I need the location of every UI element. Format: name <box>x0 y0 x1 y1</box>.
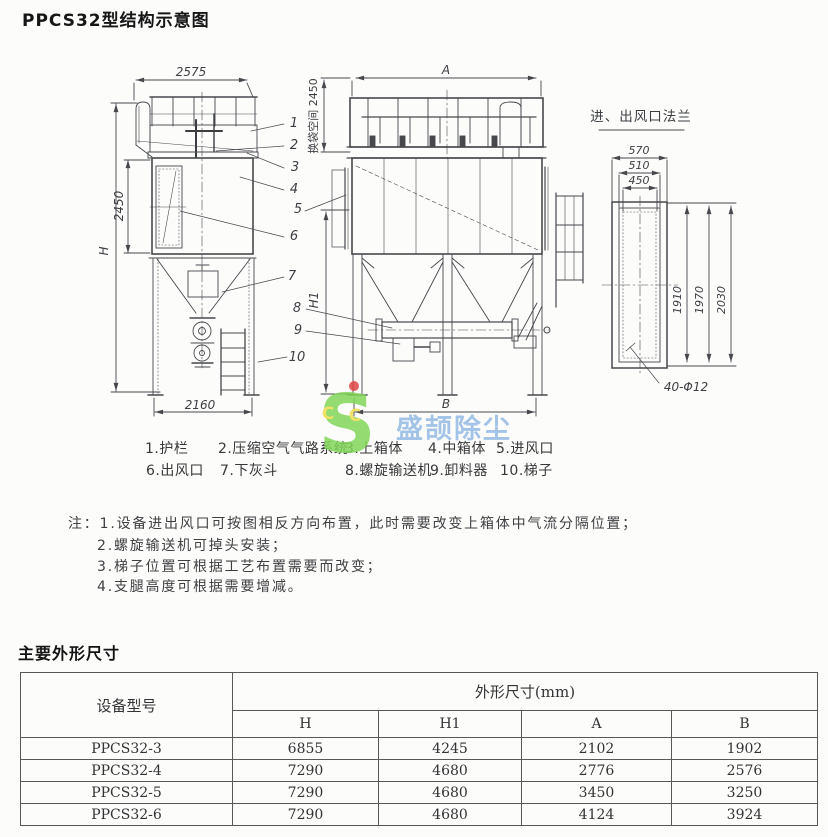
callout-1: 1 <box>290 116 298 131</box>
legend-item-2: 2.压缩空气气路系统 <box>218 438 348 458</box>
legend-item-4: 4.中箱体 <box>428 438 486 458</box>
callout-4: 4 <box>290 182 298 197</box>
note-line-2: 2.螺旋输送机可掉头安装； <box>97 535 288 555</box>
note-line-4: 4.支腿高度可根据需要增减。 <box>97 576 304 596</box>
cell-A: 3450 <box>522 782 672 804</box>
legend-item-3: 3.上箱体 <box>345 438 403 458</box>
dim-flange-510: 510 <box>629 159 650 172</box>
col-header-model: 设备型号 <box>21 673 233 738</box>
cell-H: 7290 <box>233 760 379 782</box>
legend-item-10: 10.梯子 <box>500 460 553 480</box>
section-title: 主要外形尺寸 <box>18 640 120 664</box>
page: PPCS32型结构示意图 1.护栏 2.压缩空气气路系统 3.上箱体 4.中箱体… <box>0 0 828 837</box>
col-header-group: 外形尺寸(mm) <box>233 673 818 711</box>
callout-7: 7 <box>288 269 297 284</box>
cell-B: 1902 <box>672 738 818 760</box>
dim-body-height: 2450 <box>112 190 126 221</box>
flange-detail-title: 进、出风口法兰 <box>590 109 692 125</box>
cell-H: 7290 <box>233 782 379 804</box>
page-title: PPCS32型结构示意图 <box>22 6 210 31</box>
cell-H: 7290 <box>233 804 379 826</box>
dim-flange-2030: 2030 <box>715 286 728 314</box>
col-header-H: H <box>233 711 379 738</box>
callout-5: 5 <box>294 202 302 217</box>
note-line-1: 注：1.设备进出风口可按图相反方向布置，此时需要改变上箱体中气流分隔位置； <box>68 513 638 533</box>
callout-6: 6 <box>290 229 298 244</box>
cell-H1: 4680 <box>379 782 522 804</box>
table-row: PPCS32-6 7290 4680 4124 3924 <box>21 804 818 826</box>
note-prefix: 注： <box>68 516 100 532</box>
watermark-red-dot <box>349 381 359 391</box>
dim-front-width: A <box>441 63 450 77</box>
dim-base-width: 2160 <box>185 398 216 412</box>
legend-item-1: 1.护栏 <box>145 438 188 458</box>
dim-flange-450: 450 <box>629 174 650 187</box>
cell-B: 2576 <box>672 760 818 782</box>
cell-B: 3924 <box>672 804 818 826</box>
callout-2: 2 <box>290 138 298 153</box>
callout-9: 9 <box>294 323 302 338</box>
callout-8: 8 <box>293 301 301 316</box>
legend-item-6: 6.出风口 <box>146 460 204 480</box>
dim-overall-height: H <box>97 246 111 255</box>
note-1: 1.设备进出风口可按图相反方向布置，此时需要改变上箱体中气流分隔位置； <box>100 516 638 532</box>
cell-H1: 4680 <box>379 760 522 782</box>
dim-hopper-height: H1 <box>307 292 321 309</box>
dimensions-table: 设备型号 外形尺寸(mm) H H1 A B PPCS32-3 6855 424… <box>20 672 818 826</box>
callout-3: 3 <box>291 160 299 175</box>
legend-item-8: 8.螺旋输送机 <box>345 460 432 480</box>
dim-top-width: 2575 <box>176 65 207 79</box>
legend-item-5: 5.进风口 <box>496 438 554 458</box>
watermark-letter-c1: C <box>322 404 334 424</box>
col-header-A: A <box>522 711 672 738</box>
callout-10: 10 <box>289 350 306 365</box>
dim-flange-1910: 1910 <box>671 286 684 314</box>
legend-item-7: 7.下灰斗 <box>220 460 278 480</box>
dim-flange-1970: 1970 <box>693 286 706 314</box>
legend-item-9: 9.卸料器 <box>430 460 488 480</box>
watermark-letter-c2: C <box>349 406 361 426</box>
table-row: PPCS32-3 6855 4245 2102 1902 <box>21 738 818 760</box>
table-row: PPCS32-5 7290 4680 3450 3250 <box>21 782 818 804</box>
structure-diagram: 2575 A 2160 B H 2450 H1 570 510 450 1910… <box>0 0 828 500</box>
cell-H: 6855 <box>233 738 379 760</box>
cell-model: PPCS32-6 <box>21 804 233 826</box>
cell-B: 3250 <box>672 782 818 804</box>
col-header-H1: H1 <box>379 711 522 738</box>
dim-bag-space: 换袋空间 2450 <box>306 78 320 154</box>
dim-flange-570: 570 <box>629 144 650 157</box>
dim-front-base: B <box>442 397 450 411</box>
cell-model: PPCS32-4 <box>21 760 233 782</box>
bolt-pattern-label: 40-Φ12 <box>664 380 708 394</box>
cell-H1: 4245 <box>379 738 522 760</box>
table-row: PPCS32-4 7290 4680 2776 2576 <box>21 760 818 782</box>
cell-model: PPCS32-5 <box>21 782 233 804</box>
col-header-B: B <box>672 711 818 738</box>
cell-A: 2776 <box>522 760 672 782</box>
note-line-3: 3.梯子位置可根据工艺布置需要而改变； <box>97 556 383 576</box>
cell-A: 4124 <box>522 804 672 826</box>
cell-A: 2102 <box>522 738 672 760</box>
cell-model: PPCS32-3 <box>21 738 233 760</box>
cell-H1: 4680 <box>379 804 522 826</box>
